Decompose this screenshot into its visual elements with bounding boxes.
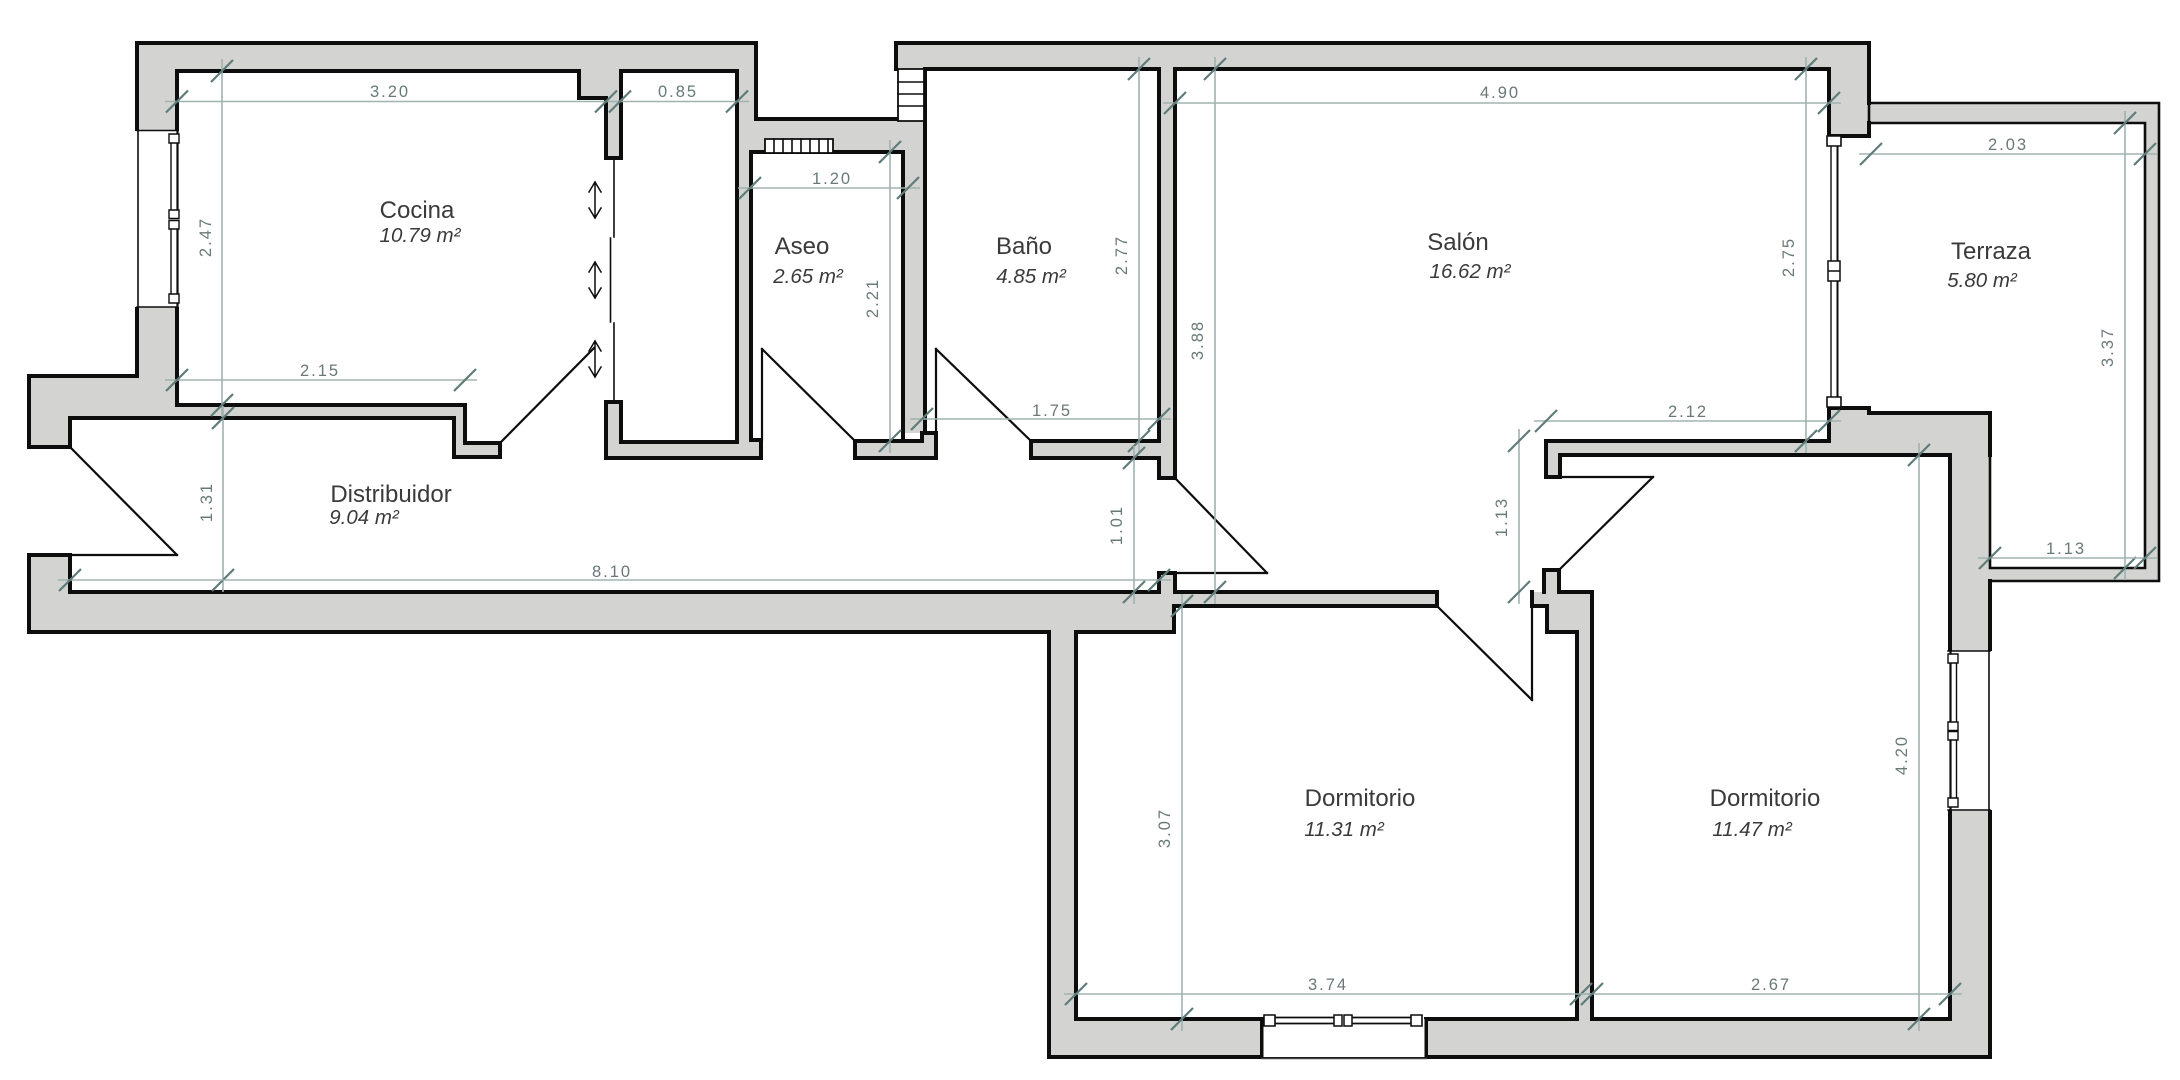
svg-text:2.47: 2.47 [197, 217, 215, 257]
svg-text:2.15: 2.15 [300, 362, 340, 380]
svg-text:Baño: Baño [996, 233, 1052, 260]
svg-text:1.20: 1.20 [812, 170, 852, 188]
svg-text:5.80 m²: 5.80 m² [1947, 269, 2018, 292]
svg-text:2.75: 2.75 [1780, 237, 1798, 277]
svg-text:2.77: 2.77 [1113, 235, 1131, 275]
svg-text:Aseo: Aseo [775, 233, 830, 260]
svg-text:2.03: 2.03 [1988, 136, 2028, 154]
svg-text:Dormitorio: Dormitorio [1710, 785, 1821, 812]
svg-text:11.31 m²: 11.31 m² [1304, 818, 1385, 841]
svg-text:8.10: 8.10 [592, 563, 632, 581]
svg-text:Dormitorio: Dormitorio [1305, 785, 1416, 812]
svg-text:Cocina: Cocina [380, 197, 455, 224]
svg-text:3.88: 3.88 [1189, 320, 1207, 360]
svg-text:3.74: 3.74 [1308, 976, 1348, 994]
svg-text:3.37: 3.37 [2099, 327, 2117, 367]
svg-text:2.67: 2.67 [1751, 976, 1791, 994]
svg-text:0.85: 0.85 [658, 83, 698, 101]
svg-text:3.07: 3.07 [1156, 808, 1174, 848]
svg-text:1.31: 1.31 [198, 482, 216, 522]
svg-text:11.47 m²: 11.47 m² [1712, 818, 1793, 841]
svg-text:4.85 m²: 4.85 m² [996, 265, 1067, 288]
svg-text:Terraza: Terraza [1951, 238, 2032, 265]
svg-text:2.12: 2.12 [1668, 403, 1708, 421]
svg-text:Salón: Salón [1427, 229, 1488, 256]
svg-text:2.65 m²: 2.65 m² [772, 265, 844, 288]
svg-text:10.79 m²: 10.79 m² [380, 224, 462, 247]
svg-text:4.20: 4.20 [1893, 735, 1911, 775]
svg-text:Distribuidor: Distribuidor [330, 481, 451, 508]
svg-text:2.21: 2.21 [864, 278, 882, 318]
svg-text:1.13: 1.13 [1493, 497, 1511, 537]
svg-text:3.20: 3.20 [370, 83, 410, 101]
svg-text:1.75: 1.75 [1032, 402, 1072, 420]
svg-text:1.13: 1.13 [2046, 540, 2086, 558]
svg-text:1.01: 1.01 [1108, 505, 1126, 545]
svg-text:16.62 m²: 16.62 m² [1430, 260, 1512, 283]
svg-text:9.04 m²: 9.04 m² [329, 506, 400, 529]
svg-text:4.90: 4.90 [1480, 84, 1520, 102]
